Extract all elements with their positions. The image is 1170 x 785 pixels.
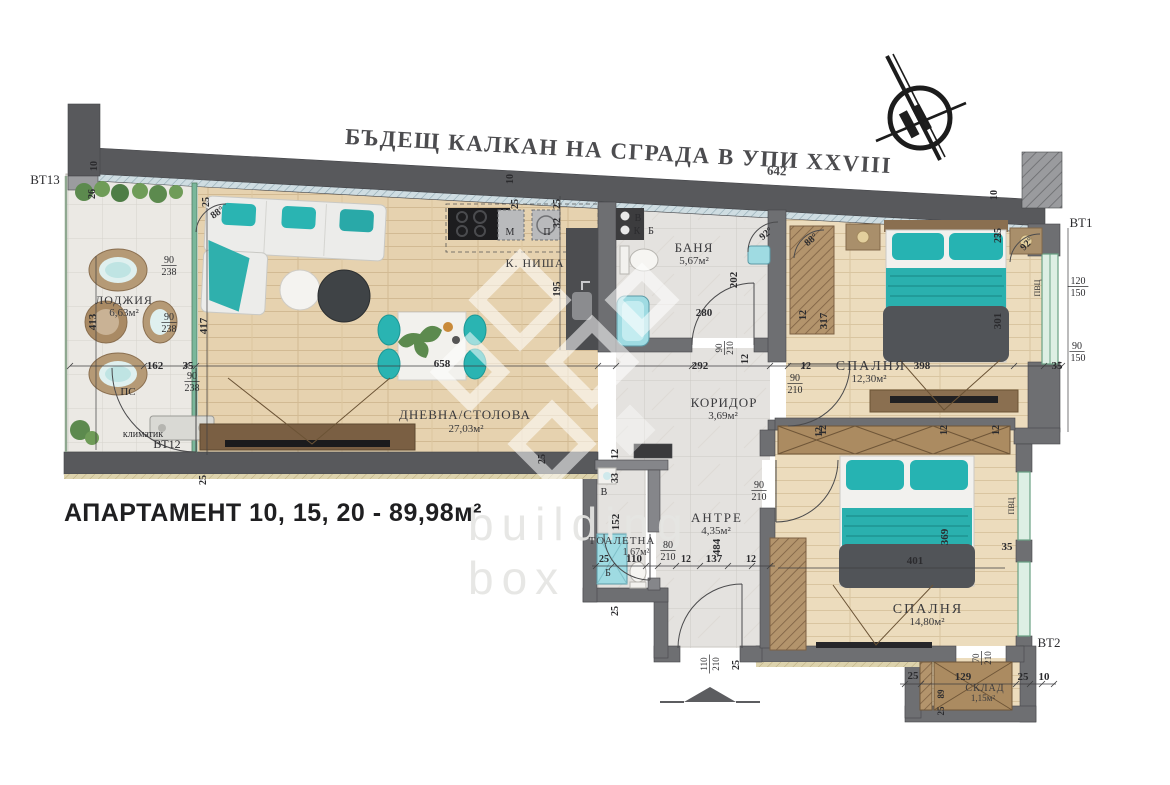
bedroom1-tv bbox=[890, 396, 998, 403]
dining-chair bbox=[378, 315, 400, 345]
bedroom2-right-wall-a bbox=[1016, 444, 1032, 472]
right-wall-mid bbox=[1028, 362, 1060, 432]
shaft-block bbox=[634, 444, 672, 458]
room-label-toilet: ТОАЛЕТНА bbox=[589, 535, 656, 547]
dimension-label: 129 bbox=[955, 671, 972, 683]
coffee-table-dark bbox=[318, 270, 370, 322]
dimension-label: 210 bbox=[661, 552, 676, 563]
room-area-bath: 5,67м² bbox=[679, 255, 709, 267]
dimension-label: 10 bbox=[1039, 671, 1051, 683]
dimension-label: 90 bbox=[164, 312, 174, 323]
dimension-label: 152 bbox=[610, 513, 622, 530]
dimension-label: 25 bbox=[201, 197, 212, 207]
dimension-label: 301 bbox=[992, 313, 1004, 330]
top-right-wall-stub bbox=[1022, 152, 1062, 208]
room-label-loggia: ЛОДЖИЯ bbox=[95, 293, 153, 307]
watermark-text-2: box bbox=[468, 552, 566, 604]
dimension-label: 90 bbox=[187, 371, 197, 382]
table-dish bbox=[452, 336, 460, 344]
bed-pillow bbox=[846, 460, 904, 490]
dimension-label: 32 bbox=[552, 218, 563, 228]
floor-plan-svg: building box БЪДЕЩ КАЛКАН НА СГРАДА В УП… bbox=[0, 0, 1170, 785]
dimension-label: 210 bbox=[711, 657, 721, 671]
dimension-label: 238 bbox=[185, 383, 200, 394]
dimension-label: 210 bbox=[788, 385, 803, 396]
dimension-label: ПВЦ bbox=[1007, 497, 1016, 514]
dimension-label: 210 bbox=[983, 651, 993, 665]
apartment-label: АПАРТАМЕНТ 10, 15, 20 - 89,98м² bbox=[64, 499, 482, 527]
entrance-right-jamb bbox=[740, 646, 762, 662]
room-label-kitchen: К. НИША bbox=[505, 256, 564, 270]
dimension-label: 90 bbox=[790, 373, 800, 384]
room-area-bedroom2: 14,80м² bbox=[909, 616, 945, 628]
dimension-label: 110 bbox=[699, 657, 709, 671]
room-area-loggia: 6,63м² bbox=[109, 307, 139, 319]
bedroom2-window-b bbox=[1018, 562, 1030, 636]
dimension-label: В bbox=[635, 213, 642, 224]
dimension-label: 25 bbox=[908, 670, 920, 682]
bath-bottom-wall-b bbox=[754, 338, 770, 352]
floor-plan-page: building box БЪДЕЩ КАЛКАН НА СГРАДА В УП… bbox=[0, 0, 1170, 785]
dimension-label: 35 bbox=[1002, 541, 1014, 553]
dimension-label: 25 bbox=[1018, 671, 1030, 683]
dimension-label: 25 bbox=[552, 199, 563, 209]
dimension-label: 89 bbox=[936, 689, 946, 699]
room-label-living: ДНЕВНА/СТОЛОВА bbox=[399, 407, 531, 422]
toilet-tank bbox=[620, 246, 629, 274]
dimension-label: ВТ1 bbox=[1070, 215, 1093, 230]
dimension-label: 292 bbox=[692, 360, 709, 372]
dimension-label: 12 bbox=[798, 310, 809, 320]
watermark-text-1: building bbox=[468, 498, 691, 550]
dining-chair bbox=[378, 349, 400, 379]
dimension-label: 110 bbox=[626, 553, 642, 565]
dimension-label: 10 bbox=[89, 161, 100, 171]
dimension-label: 12 bbox=[801, 361, 811, 372]
dimension-label: 90 bbox=[164, 255, 174, 266]
room-area-storage: 1,15м² bbox=[971, 693, 995, 703]
storage-shelf bbox=[920, 662, 932, 710]
bed-blanket-teal bbox=[886, 268, 1006, 312]
storage-door-jamb bbox=[1006, 646, 1024, 662]
room-area-bedroom1: 12,30м² bbox=[851, 373, 887, 385]
room-label-bedroom2: СПАЛНЯ bbox=[893, 602, 964, 617]
dimension-label: 25 bbox=[198, 475, 209, 485]
dimension-label: 10 bbox=[505, 174, 516, 184]
dimension-label: 210 bbox=[752, 492, 767, 503]
dimension-label: 80 bbox=[663, 540, 673, 551]
dimension-label: ПС bbox=[120, 386, 135, 398]
coffee-table-white bbox=[280, 270, 320, 310]
dimension-label: 35 bbox=[1052, 360, 1064, 372]
dimension-label: 25 bbox=[610, 606, 621, 616]
dimension-label: 12 bbox=[991, 425, 1002, 435]
dimension-label: 90 bbox=[1072, 341, 1082, 352]
bath-sink bbox=[748, 246, 770, 264]
dimension-label: 137 bbox=[706, 553, 723, 565]
dimension-label: Б bbox=[605, 568, 611, 579]
room-area-corridor: 3,69м² bbox=[708, 410, 738, 422]
dimension-label: ВТ13 bbox=[30, 172, 59, 187]
bed-pillow bbox=[910, 460, 968, 490]
dimension-label: ВТ2 bbox=[1038, 635, 1061, 650]
toilet2-tank bbox=[630, 582, 646, 588]
sofa-pillow bbox=[221, 203, 256, 227]
dimension-label: 25 bbox=[599, 554, 609, 565]
bed-blanket-dark bbox=[883, 306, 1009, 362]
sofa-pillow bbox=[281, 206, 316, 230]
dimension-label: 26 bbox=[87, 189, 98, 199]
room-label-corridor: КОРИДОР bbox=[691, 395, 758, 410]
dimension-label: 202 bbox=[728, 271, 740, 288]
dimension-label: 10 bbox=[989, 190, 1000, 200]
room-label-bath: БАНЯ bbox=[675, 240, 714, 255]
dimension-label: 398 bbox=[914, 360, 931, 372]
dimension-label: 12 bbox=[939, 425, 950, 435]
sofa-pillow bbox=[339, 209, 374, 233]
room-label-antre: АНТРЕ bbox=[691, 510, 743, 525]
dimension-label: К bbox=[634, 226, 641, 237]
room-area-living: 27,03м² bbox=[448, 423, 484, 435]
dimension-label: 12 bbox=[814, 427, 825, 437]
room-label-bedroom1: СПАЛНЯ bbox=[836, 359, 907, 374]
dimension-label: 25 bbox=[936, 706, 946, 716]
dimension-label: 12 bbox=[740, 354, 751, 364]
entrance-marker bbox=[660, 687, 760, 702]
dimension-label: 210 bbox=[725, 341, 735, 355]
dimension-label: 238 bbox=[162, 267, 177, 278]
entrance-arrow-icon bbox=[684, 687, 736, 702]
dimension-label: 12 bbox=[746, 554, 756, 565]
dimension-label: Б bbox=[648, 226, 654, 237]
dimension-label: 150 bbox=[1071, 288, 1086, 299]
dimension-label: 70 bbox=[971, 653, 981, 663]
antre-bedroom2-wall-a bbox=[760, 430, 775, 456]
dimension-label: 369 bbox=[939, 528, 951, 545]
dimension-label: 150 bbox=[1071, 353, 1086, 364]
bedroom1-bed bbox=[883, 220, 1009, 362]
dimension-label: ПВЦ bbox=[1033, 279, 1042, 296]
north-arrow-icon bbox=[876, 54, 966, 160]
dimension-label: 413 bbox=[87, 313, 99, 330]
dimension-label: В bbox=[601, 487, 608, 498]
dimension-label: 238 bbox=[162, 324, 177, 335]
room-area-antre: 4,35м² bbox=[701, 525, 731, 537]
dimension-label: 317 bbox=[818, 312, 830, 329]
dimension-label: 25 bbox=[537, 454, 548, 464]
dimension-label: 25 bbox=[993, 233, 1004, 243]
bedroom2-closet bbox=[770, 538, 806, 650]
dimension-label: 90 bbox=[714, 343, 724, 353]
dimension-label: 12 bbox=[681, 554, 691, 565]
dimension-label: 417 bbox=[198, 317, 210, 334]
kitchen-sink bbox=[572, 292, 592, 320]
dimension-label: 658 bbox=[434, 358, 451, 370]
dimension-label: М bbox=[506, 227, 515, 238]
bed-pillow bbox=[892, 233, 944, 260]
dimension-label: 25 bbox=[731, 660, 742, 670]
dimension-label: П bbox=[543, 227, 550, 238]
dimension-label: 25 bbox=[510, 199, 521, 209]
bedroom2-right-wall-b bbox=[1016, 540, 1032, 562]
bottom-insulation-b bbox=[64, 474, 598, 479]
bedroom2-window-a bbox=[1018, 472, 1030, 540]
dimension-label: ВТ12 bbox=[153, 437, 180, 451]
bed-blanket-teal bbox=[842, 508, 972, 550]
dimension-label: 195 bbox=[552, 282, 563, 297]
dimension-label: 120 bbox=[1071, 276, 1086, 287]
dimension-label: 162 bbox=[147, 360, 164, 372]
loggia-plant-leaf bbox=[85, 431, 99, 445]
dimension-label: 280 bbox=[696, 307, 713, 319]
dimension-label: 90 bbox=[754, 480, 764, 491]
dimension-label: 12 bbox=[610, 449, 621, 459]
right-step-wall bbox=[1014, 428, 1060, 444]
table-bowl bbox=[443, 322, 453, 332]
dimension-label: 33 bbox=[610, 473, 621, 483]
plan-title-subscript: 642 bbox=[767, 163, 787, 179]
living-bottom-wall bbox=[64, 452, 598, 474]
dimension-label: 401 bbox=[907, 555, 924, 567]
